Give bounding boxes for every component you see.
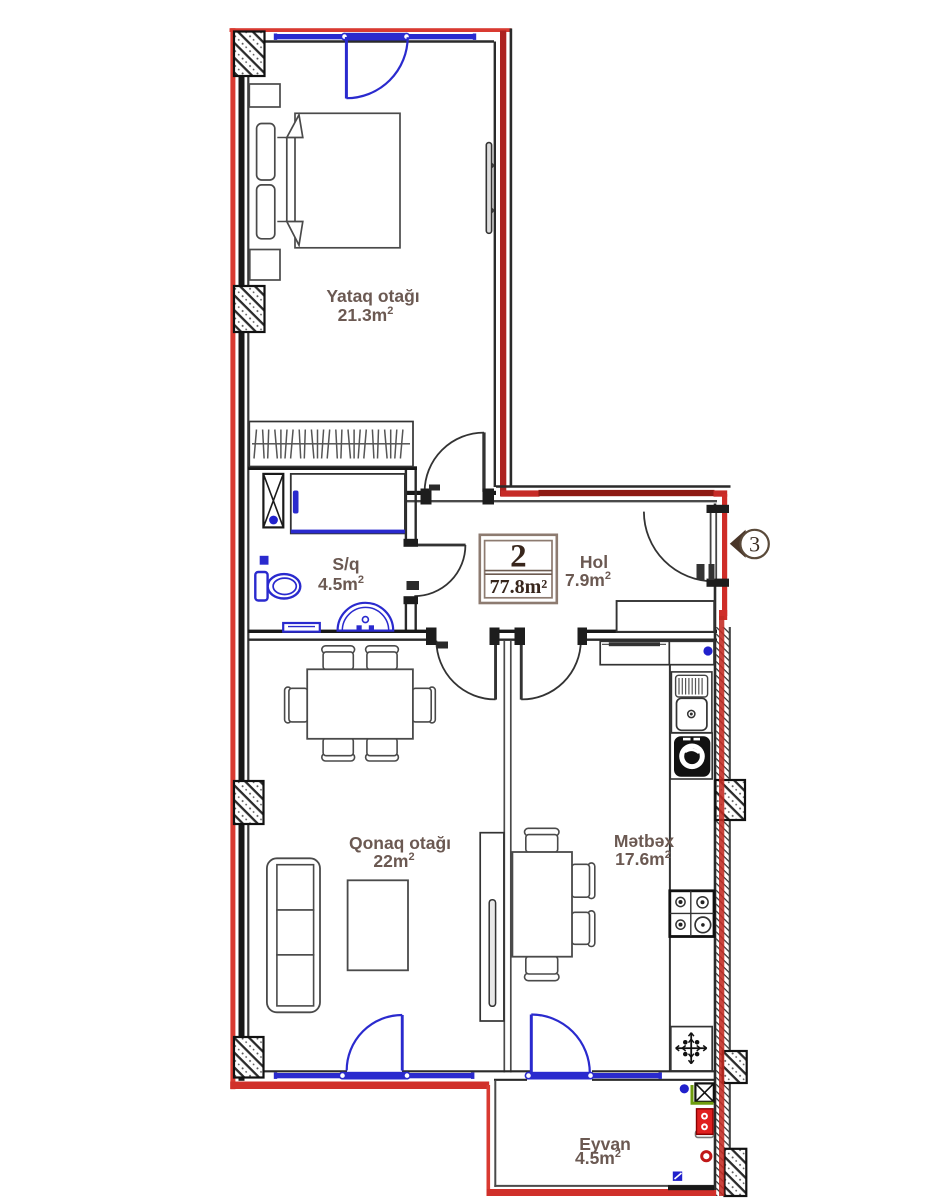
svg-text:Hol: Hol (580, 552, 608, 572)
svg-text:21.3m2: 21.3m2 (338, 305, 394, 325)
svg-text:7.9m2: 7.9m2 (565, 570, 611, 590)
svg-text:77.8m²: 77.8m² (490, 576, 548, 598)
svg-text:Yataq otağı: Yataq otağı (326, 286, 419, 306)
svg-text:3: 3 (749, 532, 760, 557)
svg-text:22m2: 22m2 (373, 851, 414, 871)
svg-text:4.5m2: 4.5m2 (575, 1148, 621, 1168)
svg-text:17.6m2: 17.6m2 (615, 849, 671, 869)
svg-text:S/q: S/q (332, 554, 359, 574)
svg-text:Qonaq otağı: Qonaq otağı (349, 833, 451, 853)
svg-text:Mətbəx: Mətbəx (614, 831, 675, 851)
svg-text:2: 2 (510, 539, 527, 575)
svg-text:4.5m2: 4.5m2 (318, 574, 364, 594)
